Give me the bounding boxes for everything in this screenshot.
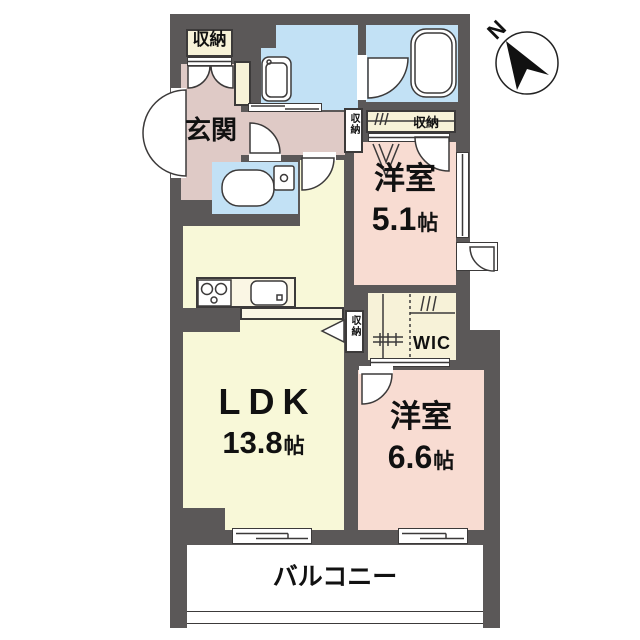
ldk-balcony-window — [232, 528, 312, 544]
ldk-label: LDK — [183, 382, 344, 422]
western1-size-unit: 帖 — [417, 212, 438, 235]
toilet-doorway — [249, 152, 281, 161]
north-label: N — [479, 12, 514, 47]
room-bathroom — [366, 25, 458, 102]
western2-size-unit: 帖 — [433, 450, 454, 473]
ldk-size: 13.8 帖 — [183, 426, 344, 460]
kitchen-wall-jut — [183, 308, 240, 332]
entrance-storage-doors — [187, 57, 232, 66]
floorplan-canvas: { "compass": { "north_label": "N" }, "ro… — [0, 0, 640, 640]
ldk-size-unit: 帖 — [284, 435, 305, 458]
ldk-doorway — [303, 152, 336, 161]
western1-side-door-landing — [456, 242, 498, 271]
western1-window — [456, 152, 469, 238]
room-ldk — [183, 226, 344, 508]
western2-balcony-window — [398, 528, 468, 544]
western1-size-value: 5.1 — [372, 202, 416, 237]
kitchen-counter — [196, 277, 296, 308]
balcony-wall-left — [170, 560, 187, 628]
wic-label: WIC — [408, 334, 456, 354]
entrance-label: 玄関 — [182, 116, 240, 145]
western1-label: 洋室 — [354, 162, 456, 196]
balcony-label: バルコニー — [187, 564, 483, 592]
compass-icon — [496, 32, 558, 94]
hall-storage-label: 収納 — [348, 113, 359, 135]
washroom-sliding-door — [248, 103, 322, 112]
western1-size: 5.1 帖 — [354, 202, 456, 237]
room-washroom-upper — [276, 25, 358, 55]
bathroom-doorway — [357, 55, 367, 100]
compass-needle — [506, 41, 549, 90]
ldk-storage-label: 収納 — [349, 315, 360, 337]
balcony-rail — [187, 611, 483, 624]
room-washroom — [261, 48, 358, 110]
entrance-storage-label: 収納 — [186, 31, 233, 50]
western2-doorway — [359, 366, 393, 374]
western2-label: 洋室 — [358, 400, 484, 434]
balcony-wall-right — [483, 560, 500, 628]
shoe-cabinet — [234, 61, 251, 106]
western1-closet-label: 収納 — [400, 116, 452, 130]
western2-size-value: 6.6 — [388, 440, 432, 475]
ldk-size-value: 13.8 — [222, 426, 282, 460]
western1-closet-doors — [368, 133, 450, 142]
kitchen-counter-ledge — [240, 307, 344, 320]
western2-size: 6.6 帖 — [358, 440, 484, 475]
hallway — [240, 112, 345, 155]
room-toilet — [212, 162, 298, 214]
room-ldk-vestibule — [300, 160, 344, 226]
room-ldk-bottom — [225, 508, 344, 530]
